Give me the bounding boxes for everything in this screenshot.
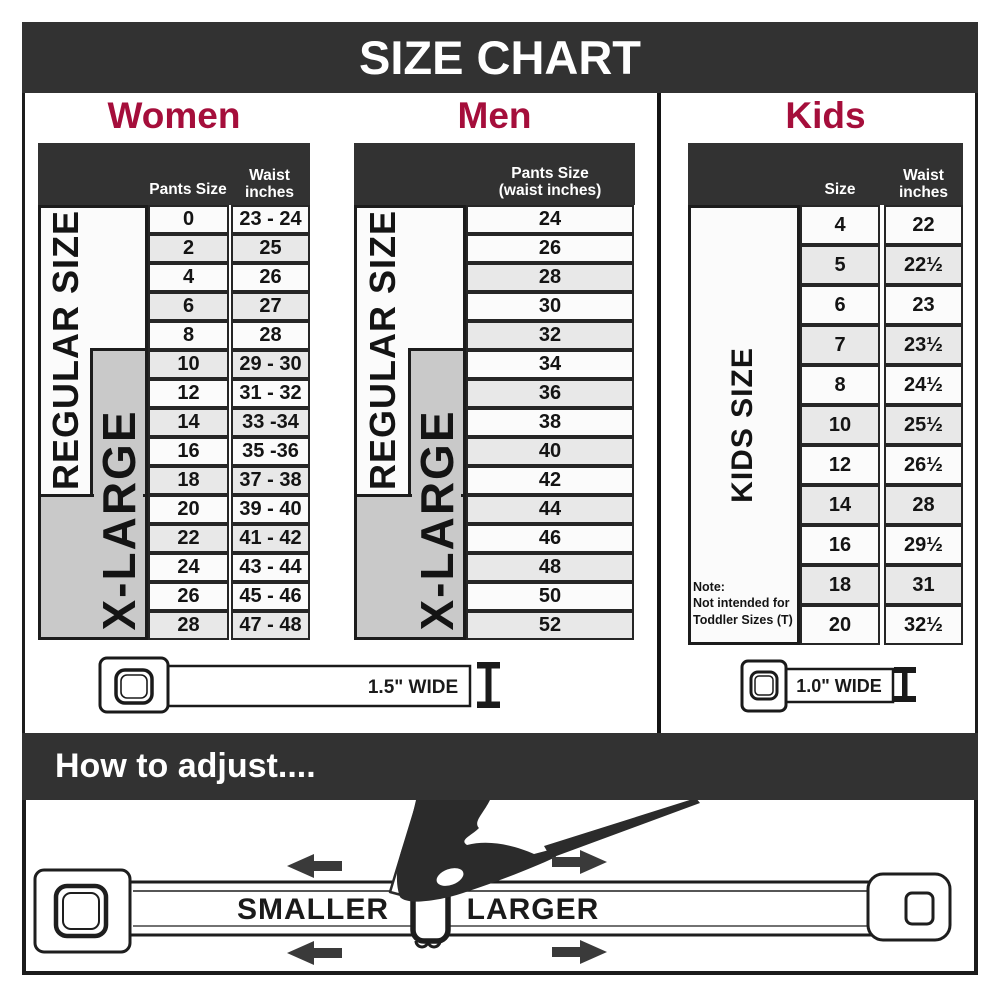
- waist-cell: 28: [884, 485, 963, 525]
- waist-inches-column-header: Waist inches: [884, 167, 963, 201]
- women-section-heading: Women: [38, 95, 310, 137]
- page-title: SIZE CHART: [359, 30, 641, 85]
- size-cell: 30: [466, 292, 634, 321]
- size-cell: 10: [148, 350, 229, 379]
- waist-cell: 23: [884, 285, 963, 325]
- size-cell: 48: [466, 553, 634, 582]
- waist-cell: 45 - 46: [231, 582, 310, 611]
- waist-header-line2: inches: [884, 184, 963, 201]
- women-size-table: Pants Size Waist inches REGULAR SIZE X-L…: [38, 143, 310, 640]
- size-cell: 20: [148, 495, 229, 524]
- size-column-header: Size: [800, 181, 880, 198]
- size-cell: 7: [800, 325, 880, 365]
- size-cell: 8: [148, 321, 229, 350]
- waist-cell: 27: [231, 292, 310, 321]
- size-cell: 6: [148, 292, 229, 321]
- width-measure-icon: [477, 662, 500, 708]
- size-cell: 40: [466, 437, 634, 466]
- waist-cell: 35 -36: [231, 437, 310, 466]
- kids-table-header: Size Waist inches: [688, 143, 963, 205]
- belt-tip: [868, 874, 950, 940]
- size-cell: 20: [800, 605, 880, 645]
- waist-cell: 32½: [884, 605, 963, 645]
- men-size-table: Pants Size (waist inches) REGULAR SIZE X…: [354, 143, 635, 640]
- regular-size-label: REGULAR SIZE: [362, 210, 404, 490]
- waist-cell: 23 - 24: [231, 205, 310, 234]
- left-arrow-icon: [287, 854, 342, 878]
- section-divider: [657, 93, 661, 733]
- size-cell: 16: [148, 437, 229, 466]
- waist-cell: 39 - 40: [231, 495, 310, 524]
- pants-size-column-header: Pants Size (waist inches): [466, 165, 634, 199]
- size-cell: 46: [466, 524, 634, 553]
- width-measure-icon: [894, 667, 916, 702]
- size-cell: 10: [800, 405, 880, 445]
- larger-label: LARGER: [467, 893, 600, 926]
- smaller-label: SMALLER: [237, 893, 389, 926]
- note-line1: Note:: [693, 579, 801, 595]
- size-cell: 18: [148, 466, 229, 495]
- regular-size-label: REGULAR SIZE: [45, 210, 87, 490]
- men-header-line2: (waist inches): [466, 182, 634, 199]
- belt-buckle: [742, 661, 786, 711]
- waist-cell: 31 - 32: [231, 379, 310, 408]
- kids-note: Note: Not intended for Toddler Sizes (T): [693, 579, 801, 628]
- waist-inches-column-header: Waist inches: [229, 167, 310, 201]
- size-cell: 5: [800, 245, 880, 285]
- waist-cell: 26: [231, 263, 310, 292]
- women-table-header: Pants Size Waist inches: [38, 143, 310, 205]
- size-cell: 26: [466, 234, 634, 263]
- men-section-heading: Men: [354, 95, 635, 137]
- size-chart-banner: SIZE CHART: [22, 22, 978, 93]
- pants-size-column-header: Pants Size: [144, 181, 232, 198]
- belt-buckle: [35, 870, 130, 952]
- size-cell: 14: [800, 485, 880, 525]
- size-cell: 28: [148, 611, 229, 640]
- size-cell: 50: [466, 582, 634, 611]
- waist-header-line1: Waist: [884, 167, 963, 184]
- adjust-illustration: SMALLER LARGER: [22, 800, 978, 971]
- waist-cell: 29 - 30: [231, 350, 310, 379]
- belt-buckle: [100, 658, 168, 712]
- size-cell: 24: [148, 553, 229, 582]
- kids-size-table: Size Waist inches KIDS SIZE Note: Not in…: [688, 143, 963, 645]
- waist-header-line1: Waist: [229, 167, 310, 184]
- kids-belt-illustration: 1.0" WIDE: [735, 653, 927, 715]
- size-cell: 4: [148, 263, 229, 292]
- waist-cell: 22: [884, 205, 963, 245]
- size-cell: 4: [800, 205, 880, 245]
- x-large-label: X-LARGE: [410, 410, 464, 631]
- belt-width-label: 1.5" WIDE: [368, 677, 458, 698]
- waist-cell: 31: [884, 565, 963, 605]
- size-cell: 32: [466, 321, 634, 350]
- kids-section-heading: Kids: [688, 95, 963, 137]
- waist-cell: 29½: [884, 525, 963, 565]
- waist-cell: 25½: [884, 405, 963, 445]
- size-cell: 36: [466, 379, 634, 408]
- left-arrow-icon: [287, 941, 342, 965]
- size-cell: 6: [800, 285, 880, 325]
- waist-cell: 22½: [884, 245, 963, 285]
- men-table-header: Pants Size (waist inches): [354, 143, 635, 205]
- adult-belt-illustration: 1.5" WIDE: [95, 650, 505, 716]
- size-cell: 8: [800, 365, 880, 405]
- size-cell: 26: [148, 582, 229, 611]
- size-cell: 2: [148, 234, 229, 263]
- size-cell: 34: [466, 350, 634, 379]
- note-line2: Not intended for: [693, 595, 801, 611]
- waist-header-line2: inches: [229, 184, 310, 201]
- men-header-line1: Pants Size: [466, 165, 634, 182]
- belt-width-label: 1.0" WIDE: [796, 676, 882, 696]
- size-cell: 38: [466, 408, 634, 437]
- size-cell: 12: [148, 379, 229, 408]
- size-cell: 22: [148, 524, 229, 553]
- size-cell: 24: [466, 205, 634, 234]
- x-large-label: X-LARGE: [92, 410, 146, 631]
- waist-cell: 37 - 38: [231, 466, 310, 495]
- waist-cell: 23½: [884, 325, 963, 365]
- waist-cell: 33 -34: [231, 408, 310, 437]
- waist-cell: 26½: [884, 445, 963, 485]
- waist-cell: 41 - 42: [231, 524, 310, 553]
- adjust-banner: How to adjust....: [22, 733, 978, 800]
- size-cell: 52: [466, 611, 634, 640]
- size-cell: 44: [466, 495, 634, 524]
- size-cell: 14: [148, 408, 229, 437]
- size-cell: 12: [800, 445, 880, 485]
- waist-cell: 43 - 44: [231, 553, 310, 582]
- size-cell: 18: [800, 565, 880, 605]
- loose-strap: [544, 800, 700, 858]
- waist-cell: 25: [231, 234, 310, 263]
- waist-cell: 28: [231, 321, 310, 350]
- size-cell: 16: [800, 525, 880, 565]
- waist-cell: 47 - 48: [231, 611, 310, 640]
- note-line3: Toddler Sizes (T): [693, 612, 801, 628]
- size-cell: 28: [466, 263, 634, 292]
- size-cell: 0: [148, 205, 229, 234]
- right-arrow-icon: [552, 940, 607, 964]
- size-cell: 42: [466, 466, 634, 495]
- adjust-heading: How to adjust....: [22, 747, 316, 786]
- kids-size-label: KIDS SIZE: [726, 347, 760, 503]
- waist-cell: 24½: [884, 365, 963, 405]
